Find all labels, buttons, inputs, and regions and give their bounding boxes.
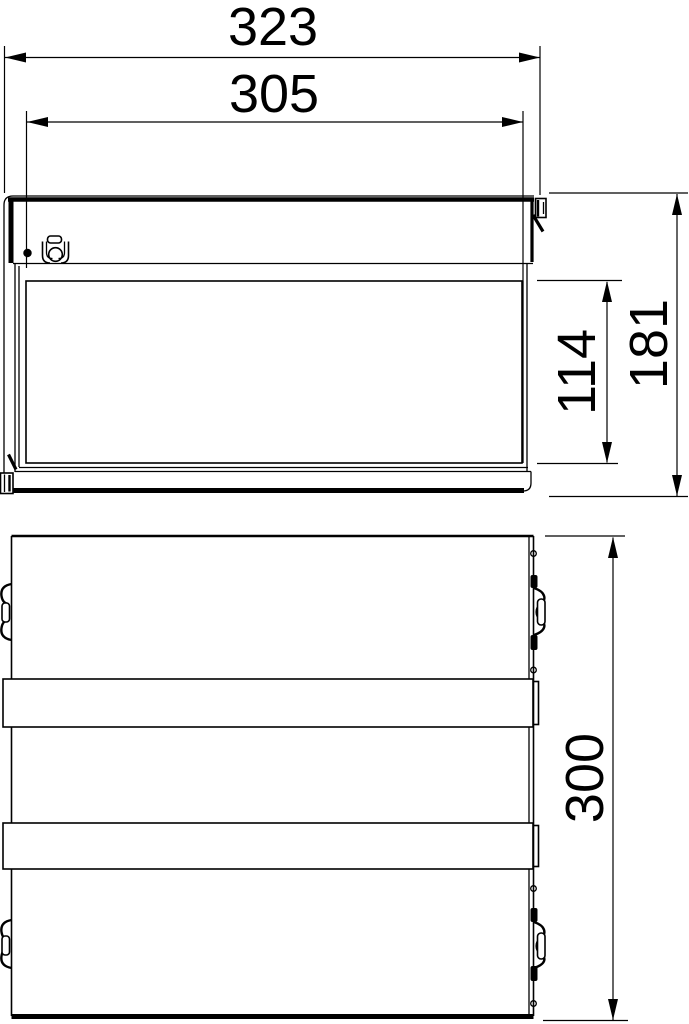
dim-label-opening-height: 114	[547, 329, 607, 415]
clip-pad	[538, 933, 546, 959]
bottom-rail-corner	[523, 472, 531, 492]
arrowhead-bottom	[602, 442, 612, 463]
arrowhead-bottom	[672, 475, 682, 496]
arrowhead-right	[502, 117, 523, 127]
cable-clamp-icon	[43, 236, 69, 263]
clip-pad	[2, 936, 10, 955]
arrowhead-left	[5, 53, 26, 63]
rail-band	[3, 823, 533, 869]
clip-block-bottom	[531, 635, 538, 650]
technical-drawing: 323 305 114 181	[0, 0, 689, 1024]
latch-body	[1, 473, 14, 494]
mounting-rail-lower	[3, 823, 539, 869]
dim-label-depth: 300	[555, 733, 615, 823]
inner-opening	[26, 281, 522, 463]
bottom-view: 300	[1, 536, 628, 1021]
front-outline	[4, 196, 534, 491]
arrowhead-left	[27, 117, 48, 127]
clamp-slot	[48, 236, 62, 243]
dim-label-overall-height: 181	[619, 299, 679, 389]
clip-block-bottom	[531, 966, 538, 981]
rail-end-cap	[534, 826, 539, 867]
dim-label-cover-width: 305	[229, 64, 319, 124]
clip-pad	[2, 603, 10, 622]
arrowhead-top	[672, 194, 682, 215]
clip-pad	[538, 599, 546, 625]
rail-end-cap	[534, 682, 539, 725]
arrowhead-bottom	[608, 999, 618, 1020]
outer-contour	[4, 196, 534, 474]
side-clip-right-upper-icon	[531, 551, 546, 673]
latch-top-right-icon	[533, 199, 546, 232]
clip-block-top	[531, 908, 538, 922]
dim-cover-width: 305	[27, 64, 524, 281]
rail-band	[3, 679, 533, 727]
latch-bottom-left-icon	[1, 455, 17, 494]
clip-hook-top	[1, 584, 11, 604]
dim-depth: 300	[543, 536, 628, 1021]
mounting-rail-upper	[3, 679, 539, 727]
clip-hook-bottom	[1, 620, 11, 640]
arrowhead-right	[519, 53, 540, 63]
screw-icon	[23, 249, 31, 257]
arrowhead-top	[602, 281, 612, 302]
side-clip-right-lower-icon	[531, 886, 546, 1007]
arrowhead-top	[608, 537, 618, 558]
clamp-circle	[49, 248, 63, 262]
front-view: 323 305 114 181	[1, 0, 689, 497]
dim-label-overall-width: 323	[228, 0, 318, 57]
side-clip-left-lower-icon	[1, 920, 11, 968]
drawing-canvas: 323 305 114 181	[0, 0, 689, 1024]
side-clip-left-upper-icon	[1, 584, 11, 640]
dim-opening-height: 114	[537, 281, 622, 464]
clip-block-top	[531, 575, 538, 588]
bottom-outline	[12, 536, 534, 1017]
